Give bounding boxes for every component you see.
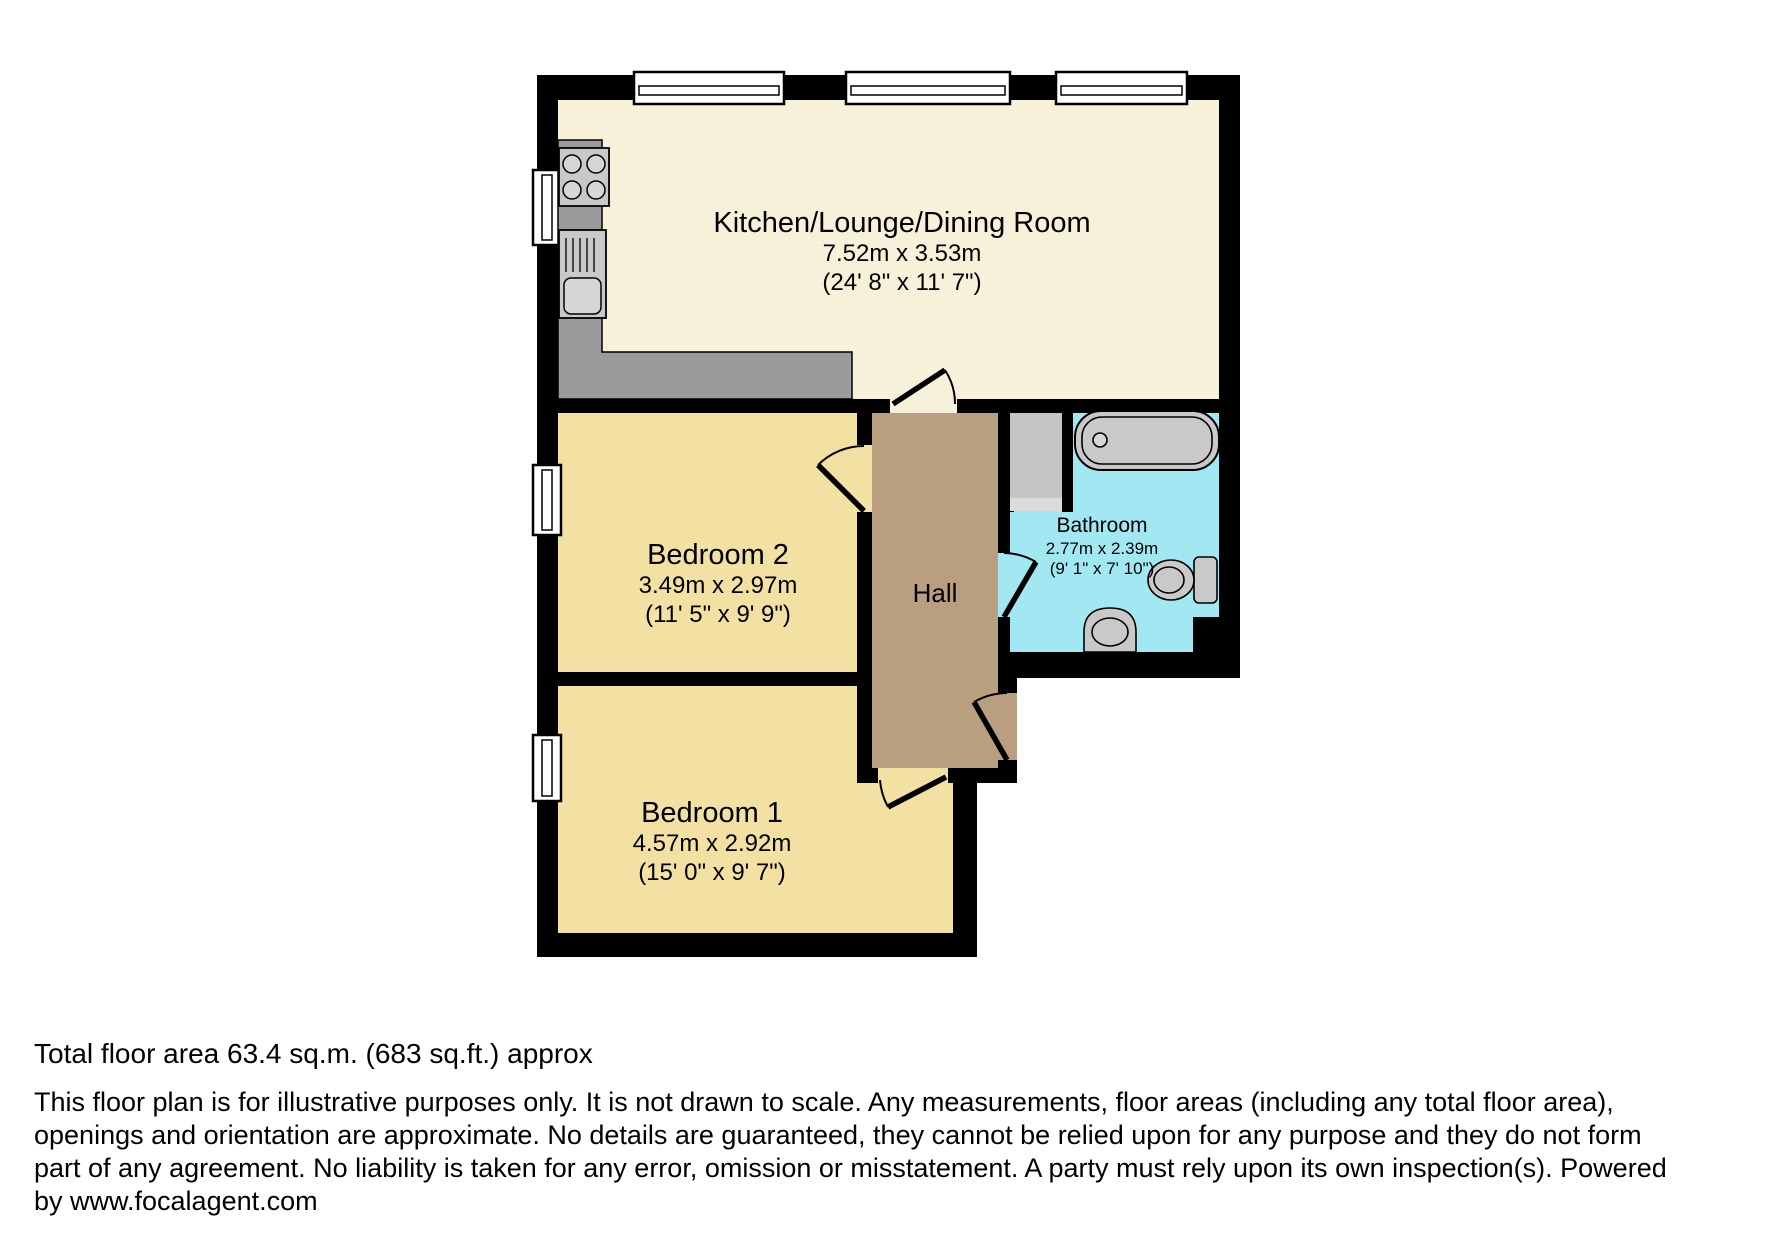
disclaimer-line-1: This floor plan is for illustrative purp… (34, 1086, 1667, 1119)
window-kitchen-left (533, 170, 561, 245)
window-bedroom1 (533, 735, 561, 801)
bathroom-dim-imperial: (9' 1" x 7' 10") (1046, 559, 1158, 579)
bedroom2-label: Bedroom 2 3.49m x 2.97m (11' 5" x 9' 9") (639, 538, 798, 629)
kitchen-dim-imperial: (24' 8" x 11' 7") (713, 269, 1090, 297)
bedroom1-dim-imperial: (15' 0" x 9' 7") (633, 859, 792, 887)
bedroom2-name: Bedroom 2 (639, 538, 798, 572)
bath-icon (1075, 411, 1219, 470)
kitchen-dim-metric: 7.52m x 3.53m (713, 240, 1090, 268)
hob-icon (559, 148, 609, 206)
window-kitchen-top-3 (1056, 72, 1187, 104)
disclaimer-line-2: openings and orientation are approximate… (34, 1119, 1667, 1152)
disclaimer-text: This floor plan is for illustrative purp… (34, 1086, 1667, 1218)
toilet-icon (1148, 557, 1217, 603)
floor-plan-page: Kitchen/Lounge/Dining Room 7.52m x 3.53m… (0, 0, 1771, 1239)
bathroom-name: Bathroom (1046, 514, 1158, 539)
disclaimer-line-4: by www.focalagent.com (34, 1185, 1667, 1218)
bedroom2-dim-metric: 3.49m x 2.97m (639, 572, 798, 600)
window-kitchen-top-1 (634, 72, 784, 104)
bedroom1-label: Bedroom 1 4.57m x 2.92m (15' 0" x 9' 7") (633, 796, 792, 887)
hall-name: Hall (913, 578, 958, 609)
bedroom1-dim-metric: 4.57m x 2.92m (633, 830, 792, 858)
total-floor-area-text: Total floor area 63.4 sq.m. (683 sq.ft.)… (34, 1038, 593, 1070)
hall-label: Hall (913, 578, 958, 609)
shower-cubicle (1010, 413, 1062, 511)
basin-icon (1084, 608, 1136, 652)
disclaimer-line-3: part of any agreement. No liability is t… (34, 1152, 1667, 1185)
window-kitchen-top-2 (846, 72, 1010, 104)
kitchen-name: Kitchen/Lounge/Dining Room (713, 206, 1090, 240)
kitchen-sink-icon (559, 230, 606, 318)
bedroom1-name: Bedroom 1 (633, 796, 792, 830)
kitchen-label: Kitchen/Lounge/Dining Room 7.52m x 3.53m… (713, 206, 1090, 297)
bathroom-dim-metric: 2.77m x 2.39m (1046, 539, 1158, 559)
bedroom2-dim-imperial: (11' 5" x 9' 9") (639, 601, 798, 629)
bathroom-label: Bathroom 2.77m x 2.39m (9' 1" x 7' 10") (1046, 514, 1158, 579)
window-bedroom2 (533, 465, 561, 535)
